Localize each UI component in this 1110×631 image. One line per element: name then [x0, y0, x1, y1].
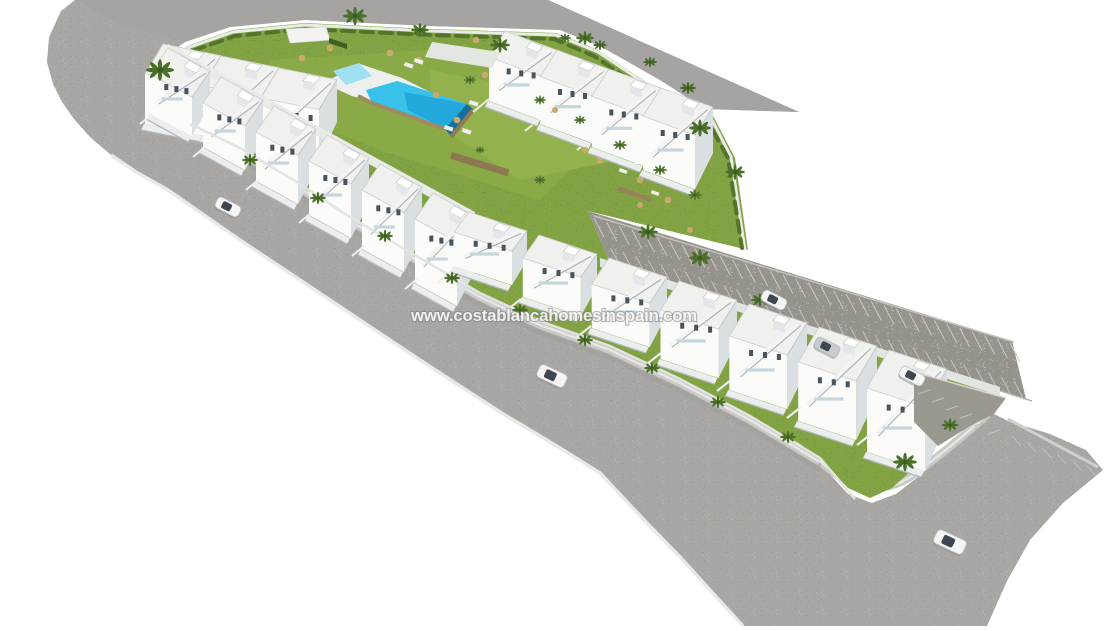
- svg-text:www.costablancahomesinspain.co: www.costablancahomesinspain.com: [410, 306, 697, 325]
